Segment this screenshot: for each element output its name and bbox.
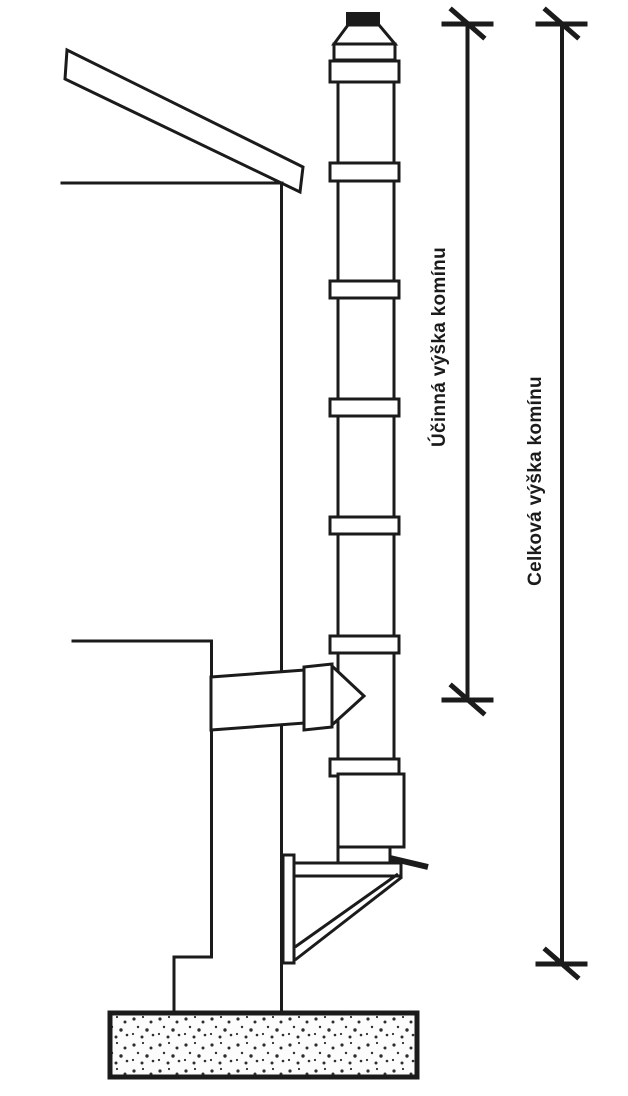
cap-base-band (334, 44, 395, 60)
concrete-foundation (110, 1013, 417, 1077)
wall-bracket (283, 855, 402, 963)
inspection-box (338, 774, 404, 847)
house-section (62, 50, 303, 1013)
chimney-pipe (338, 80, 394, 776)
connector-collar (304, 664, 332, 730)
pipe-joint-collar (330, 517, 399, 534)
rain-cap (347, 13, 379, 25)
bracket-arm (294, 863, 401, 876)
dimension-effective-height (444, 10, 491, 713)
total-height-label: Celková výška komínu (525, 376, 546, 586)
pipe-joint-collar (330, 636, 399, 653)
pipe-joint-collar (330, 163, 399, 181)
bracket-brace-upper (295, 874, 398, 947)
base-stub (338, 847, 390, 863)
flue-connector-pipe (211, 670, 305, 730)
cap-cone (334, 25, 395, 44)
effective-height-label: Účinná výška komínu (428, 247, 450, 447)
roof-rafter (65, 50, 303, 192)
pipe-joint-collar (330, 281, 399, 298)
diagram-svg: Účinná výška komínu Celková výška komínu (0, 0, 628, 1096)
pipe-joint-collar (330, 61, 399, 82)
bracket-brace-lower (295, 877, 402, 960)
pipe-joint-collar (330, 399, 399, 416)
chimney-height-diagram: Účinná výška komínu Celková výška komínu (0, 0, 628, 1096)
bracket-wall-plate (283, 855, 294, 963)
